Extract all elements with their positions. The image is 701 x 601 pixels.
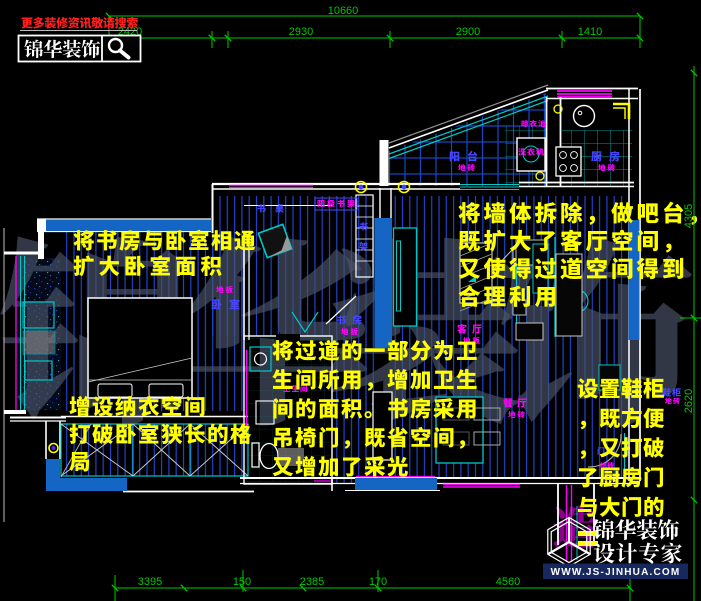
- svg-text:3395: 3395: [138, 576, 162, 588]
- svg-text:WWW.JS-JINHUA.COM: WWW.JS-JINHUA.COM: [551, 567, 681, 578]
- svg-text:4305: 4305: [683, 204, 695, 228]
- svg-text:1410: 1410: [578, 26, 602, 38]
- svg-text:150: 150: [233, 576, 251, 588]
- svg-text:2385: 2385: [300, 576, 324, 588]
- svg-text:2930: 2930: [289, 26, 313, 38]
- svg-text:170: 170: [369, 576, 387, 588]
- svg-text:4560: 4560: [496, 576, 520, 588]
- svg-text:2900: 2900: [456, 26, 480, 38]
- svg-text:2620: 2620: [683, 389, 695, 413]
- svg-text:10660: 10660: [328, 5, 359, 17]
